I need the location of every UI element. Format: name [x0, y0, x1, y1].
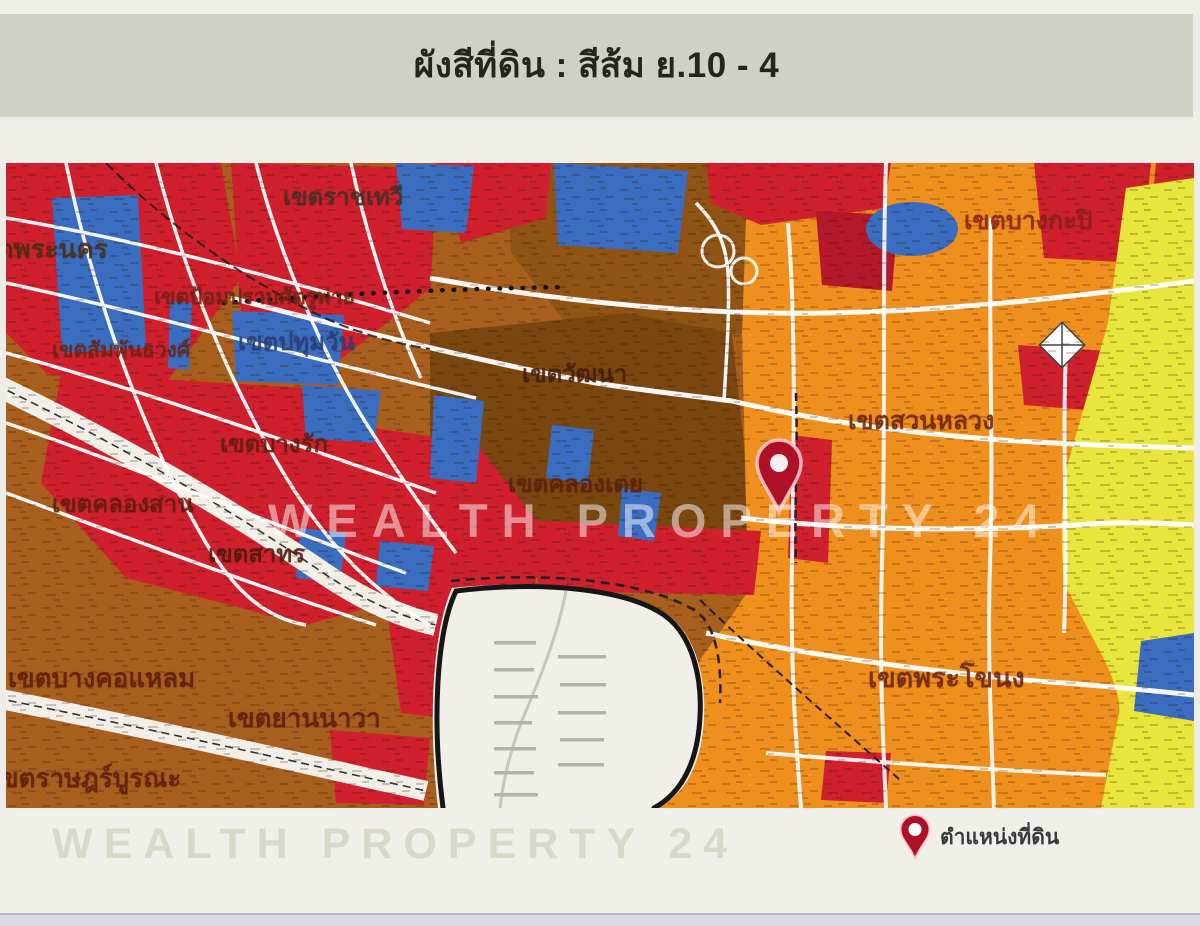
watermark: WEALTH PROPERTY 24	[268, 493, 1054, 548]
district-label: เขตยานนาวา	[228, 705, 381, 731]
gap-strip	[0, 117, 1200, 163]
legend-pin-label: ตำแหน่งที่ดิน	[940, 821, 1059, 854]
district-label: เขตสัมพันธวงศ์	[52, 340, 190, 361]
district-label: เขตพระนคร	[6, 236, 108, 262]
district-label: เขตบางกะปิ	[964, 209, 1092, 234]
page: { "header": { "title": "ผังสีที่ดิน : สี…	[0, 0, 1200, 926]
district-label: เขตสวนหลวง	[848, 409, 994, 434]
district-label: เขตป้อมปราบศัตรูพ่าย	[154, 287, 355, 308]
district-label: เขตคลองสาน	[52, 493, 194, 517]
watermark: WEALTH PROPERTY 24	[52, 820, 738, 869]
district-label: เขตบางคอแหลม	[8, 665, 195, 691]
district-label: เขตปทุมวัน	[238, 331, 355, 355]
map-pin-icon	[898, 813, 932, 861]
district-label: เขตวัฒนา	[522, 363, 627, 387]
district-label: เขตราษฎร์บูรณะ	[6, 765, 181, 791]
legend: ตำแหน่งที่ดิน	[898, 813, 1059, 861]
page-title: ผังสีที่ดิน : สีส้ม ย.10 - 4	[414, 38, 780, 93]
district-label: เขตพระโขนง	[868, 665, 1025, 692]
district-label: เขตราชเทวี	[283, 186, 403, 210]
title-band: ผังสีที่ดิน : สีส้ม ย.10 - 4	[0, 14, 1193, 117]
bottom-strip: WEALTH PROPERTY 24 ตำแหน่งที่ดิน	[0, 808, 1200, 913]
footer-strip	[0, 913, 1200, 926]
land-use-map: เขตราชเทวี เขตพระนคร เขตป้อมปราบศัตรูพ่า…	[6, 163, 1194, 808]
top-margin-strip	[0, 0, 1200, 14]
district-label: เขตบางรัก	[220, 433, 328, 457]
